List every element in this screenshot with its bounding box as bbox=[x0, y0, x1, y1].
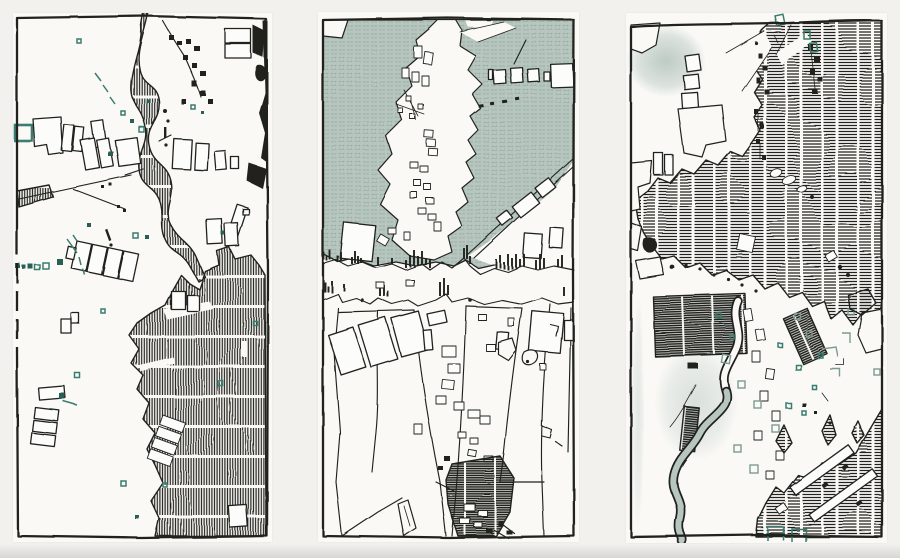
triptych-artwork bbox=[0, 0, 900, 558]
map-panel-right bbox=[626, 13, 887, 543]
map-panel-center bbox=[318, 12, 579, 542]
map-drawing-left bbox=[13, 13, 272, 542]
map-drawing-right bbox=[626, 13, 887, 543]
map-panel-left bbox=[13, 13, 272, 542]
buildings-bottom-half bbox=[328, 310, 573, 462]
hatched-district bbox=[129, 247, 266, 536]
map-drawing-center bbox=[318, 12, 579, 542]
roads-and-dots-left bbox=[101, 183, 126, 247]
hatched-river-band bbox=[131, 13, 205, 281]
paper-edge-shadow bbox=[0, 544, 900, 558]
hatched-wedge-left bbox=[17, 169, 143, 209]
